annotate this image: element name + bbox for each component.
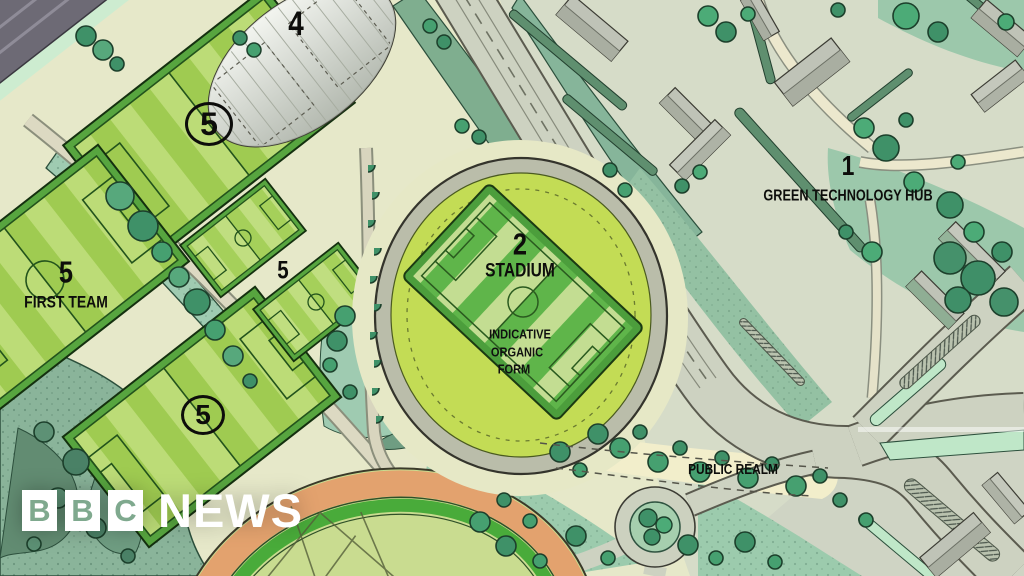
stadium-label: STADIUM — [485, 262, 555, 281]
white-line-artifact — [858, 427, 1024, 432]
stadium-note-2: ORGANIC — [491, 346, 543, 359]
hub-number: 1 — [842, 152, 855, 180]
bbc-block-b1: B — [22, 490, 57, 531]
stadium-note-1: INDICATIVE — [489, 328, 551, 341]
dome-label: 4 — [288, 7, 304, 41]
stadium-note-3: FORM — [498, 363, 531, 376]
bbc-block-c: C — [108, 490, 143, 531]
pitch-bottom-label: 5 — [181, 395, 225, 435]
first-team-label: FIRST TEAM — [24, 294, 108, 311]
stadium — [352, 140, 688, 496]
masterplan-map: 4 5 5 FIRST TEAM 5 5 2 STADIUM INDICATIV… — [0, 0, 1024, 576]
bbc-news-text: NEWS — [158, 487, 303, 534]
stadium-number: 2 — [513, 229, 527, 260]
small-pitch-label: 5 — [277, 259, 288, 284]
public-realm-label: PUBLIC REALM — [688, 463, 778, 478]
first-team-number: 5 — [59, 257, 73, 288]
pitch-top-label: 5 — [185, 102, 233, 146]
bbc-block-b2: B — [65, 490, 100, 531]
bbc-news-logo: B B C NEWS — [22, 487, 303, 534]
hub-label: GREEN TECHNOLOGY HUB — [763, 188, 932, 204]
